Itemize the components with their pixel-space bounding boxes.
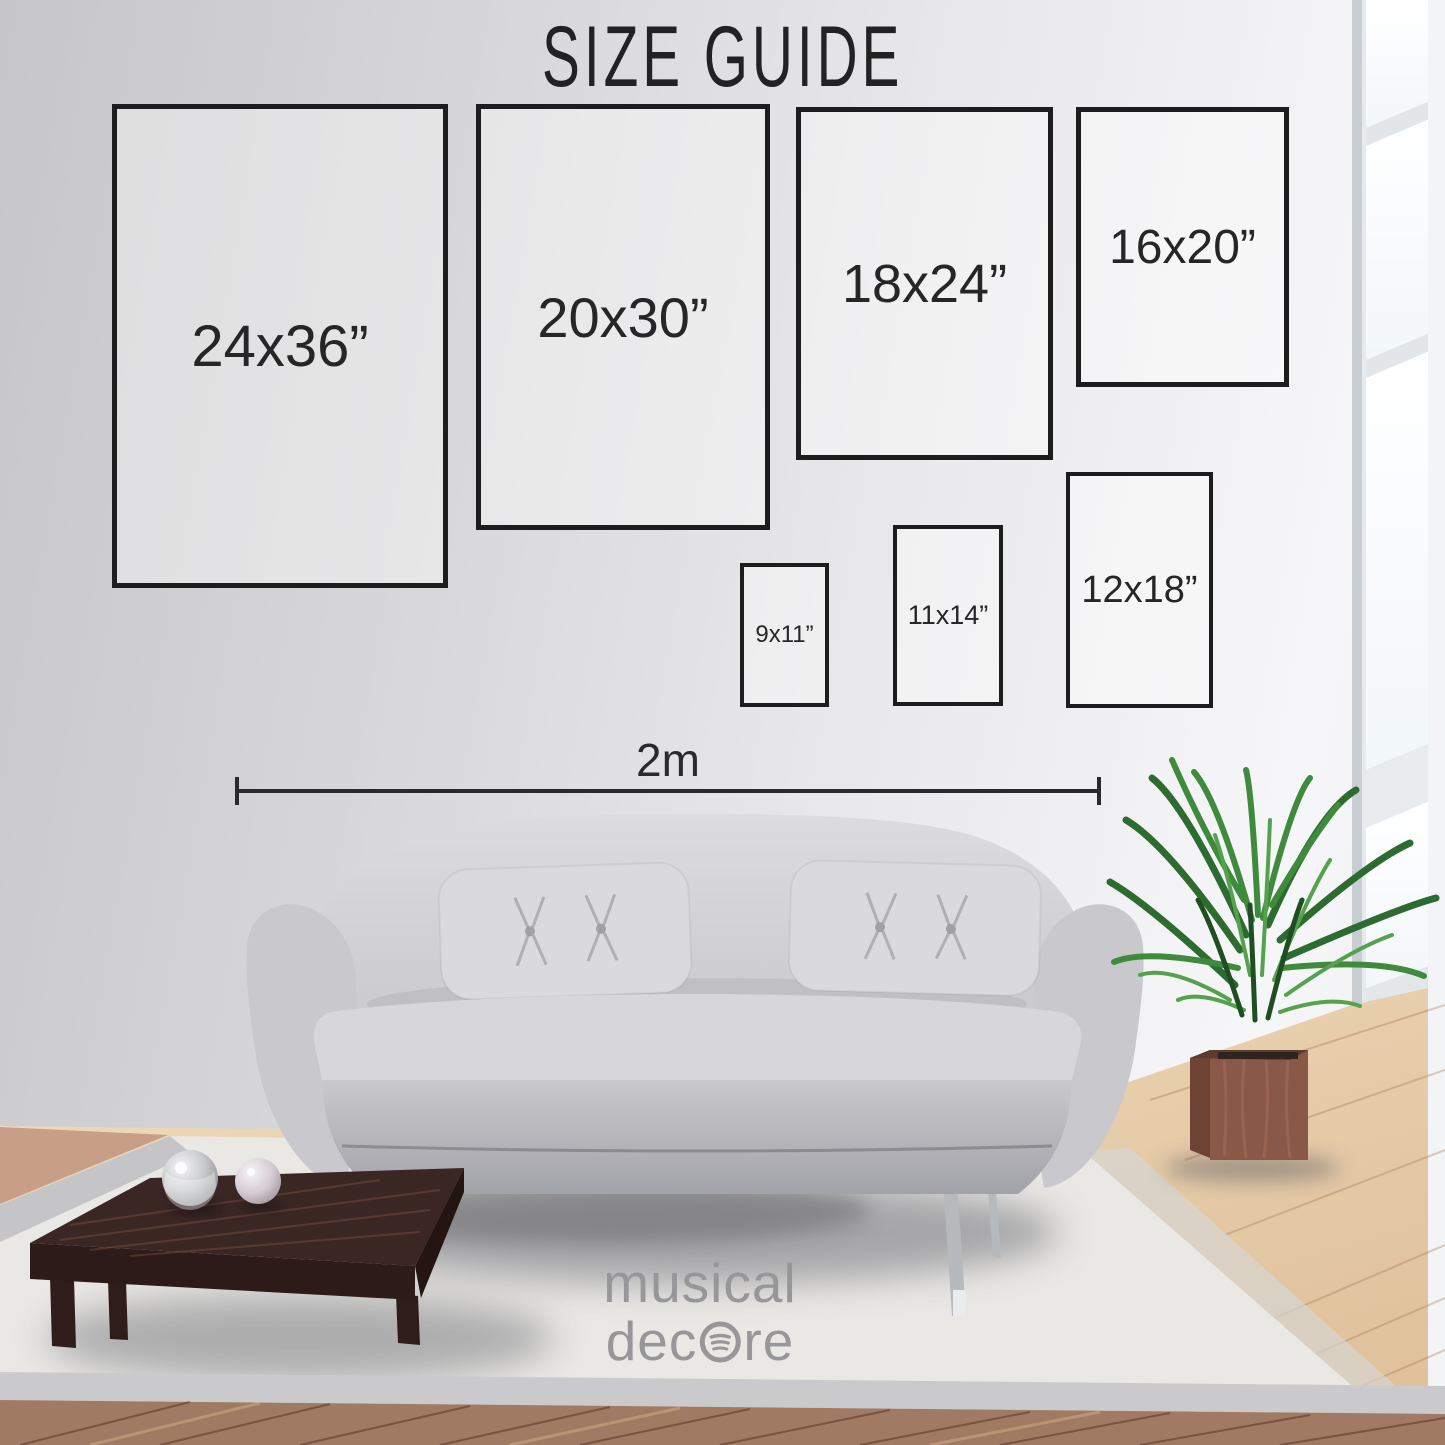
spotify-style-icon	[699, 1321, 741, 1363]
size-box-12x18: 12x18”	[1066, 472, 1213, 708]
scale-bar-label: 2m	[235, 733, 1101, 787]
size-guide-title: SIZE GUIDE	[542, 8, 903, 107]
size-label-16x20: 16x20”	[1109, 220, 1256, 275]
size-box-11x14: 11x14”	[893, 525, 1003, 706]
planter	[1190, 1050, 1308, 1160]
glass-sphere-small	[235, 1158, 281, 1204]
scale-bar-tick-left	[235, 777, 239, 805]
sofa-pillow-right	[788, 860, 1041, 996]
size-label-11x14: 11x14”	[908, 600, 989, 631]
size-label-20x30: 20x30”	[537, 285, 708, 350]
size-box-18x24: 18x24”	[796, 107, 1053, 460]
page-title: SIZE GUIDE	[0, 8, 1445, 107]
scale-bar: 2m	[235, 733, 1101, 808]
size-box-20x30: 20x30”	[476, 104, 770, 530]
sofa-pillow-left	[438, 862, 692, 1001]
brand-line1: musical	[603, 1256, 796, 1311]
size-label-24x36: 24x36”	[191, 313, 368, 380]
wall-pillar	[1428, 0, 1445, 1404]
brand-line2: dec re	[603, 1314, 796, 1369]
size-label-9x11: 9x11”	[755, 621, 813, 649]
scale-bar-tick-right	[1097, 777, 1101, 805]
scale-bar-line	[235, 789, 1101, 793]
size-label-18x24: 18x24”	[842, 253, 1007, 315]
size-label-12x18: 12x18”	[1081, 569, 1197, 612]
size-box-9x11: 9x11”	[740, 563, 829, 707]
size-box-16x20: 16x20”	[1076, 107, 1289, 387]
size-box-24x36: 24x36”	[112, 104, 448, 588]
brand-logo: musical dec re	[603, 1256, 796, 1369]
